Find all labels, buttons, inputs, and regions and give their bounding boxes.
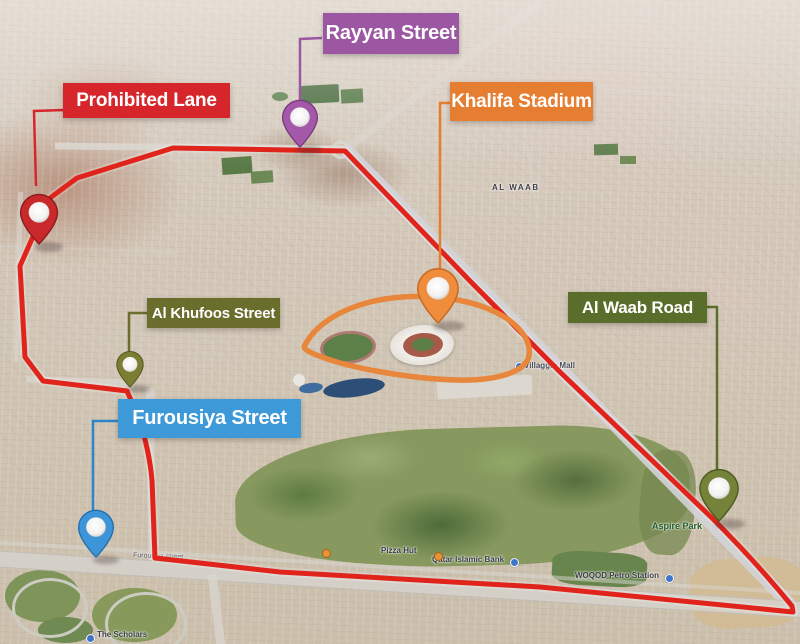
rayyan-street-pin bbox=[283, 100, 318, 147]
khufoos-connector-line bbox=[129, 313, 148, 356]
alwaab-connector-line bbox=[706, 307, 717, 472]
pin-shadow bbox=[93, 556, 119, 564]
khalifa-stadium-pin bbox=[418, 269, 458, 323]
rayyan-street-label: Rayyan Street bbox=[323, 13, 459, 54]
annotated-map-figure: AL WAAB Aspire Park Villaggio Mall Qatar… bbox=[0, 0, 800, 644]
al-khufoos-street-label: Al Khufoos Street bbox=[147, 298, 280, 328]
prohibited-lane-label: Prohibited Lane bbox=[63, 83, 230, 118]
furousiya-street-pin bbox=[79, 510, 114, 557]
prohibited-connector-line bbox=[34, 110, 64, 186]
furousiya-street-label: Furousiya Street bbox=[118, 399, 301, 438]
furousiya-connector-line bbox=[93, 421, 119, 516]
al-waab-road-label: Al Waab Road bbox=[568, 292, 707, 323]
al-khufoos-street-pin bbox=[117, 352, 143, 388]
khalifa-stadium-label: Khalifa Stadium bbox=[450, 82, 593, 121]
prohibited-lane-pin bbox=[21, 194, 58, 244]
